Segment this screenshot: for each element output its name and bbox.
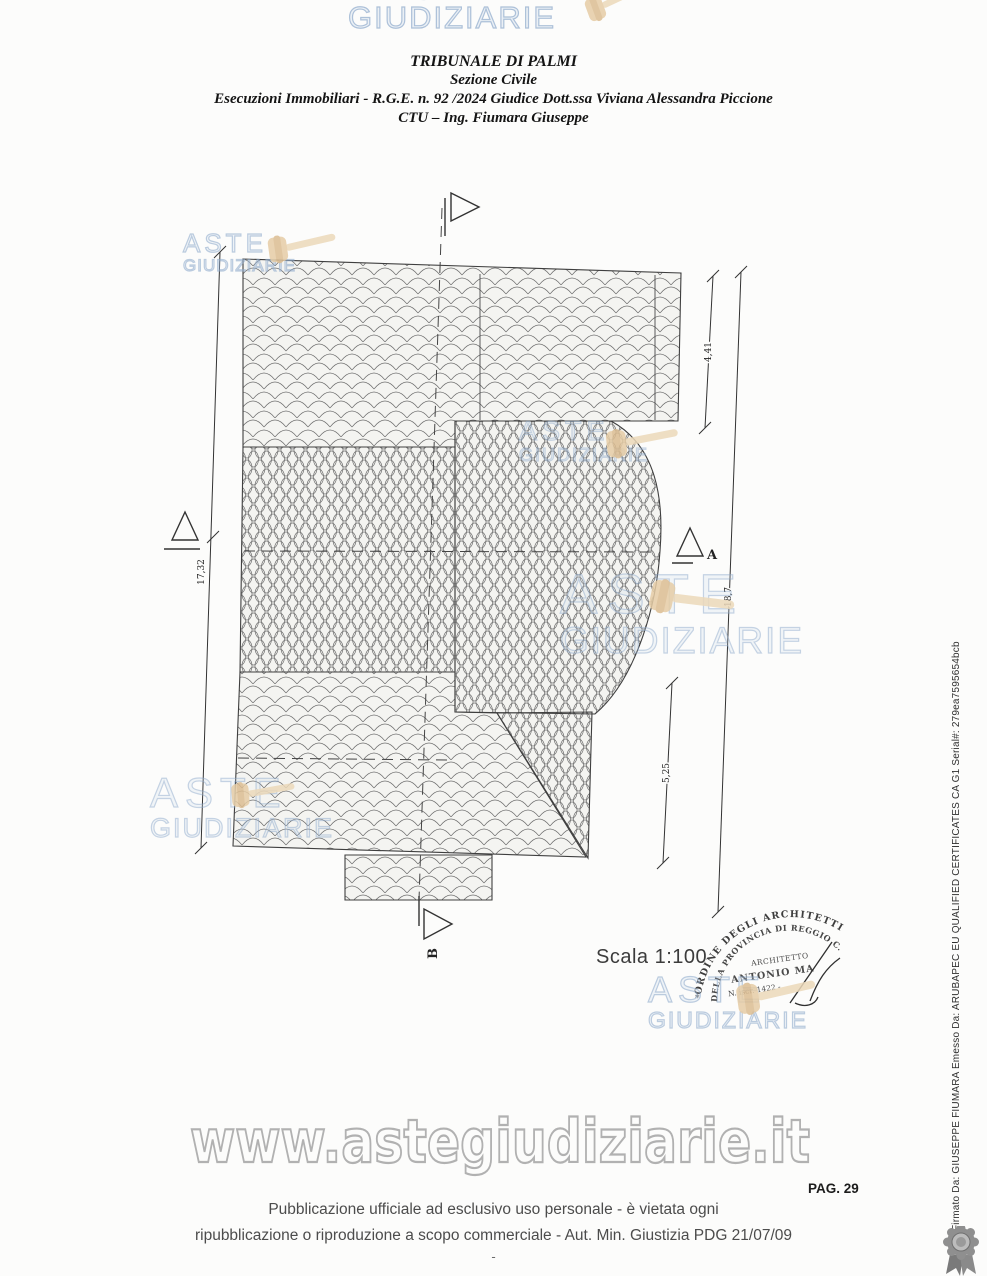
seal-ribbon-icon <box>936 1226 986 1276</box>
logo-word-giudiziarie: GIUDIZIARIE <box>150 815 334 843</box>
footer-line-2: ripubblicazione o riproduzione a scopo c… <box>0 1227 987 1245</box>
scale-label: Scala 1:100 <box>596 946 707 969</box>
section-marker-a-triangle <box>672 528 703 563</box>
digital-signature-text: Firmato Da: GIUSEPPE FIUMARA Emesso Da: … <box>951 541 966 1231</box>
gavel-icon <box>225 775 300 813</box>
case-reference: Esecuzioni Immobiliari - R.G.E. n. 92 /2… <box>0 90 987 109</box>
svg-text:www.astegiudiziarie.it: www.astegiudiziarie.it <box>190 1107 810 1177</box>
dim-label-right-bottom: 5,25 <box>662 763 672 783</box>
court-header: TRIBUNALE DI PALMI Sezione Civile Esecuz… <box>0 52 987 128</box>
scanned-document-page: 17,32 4,41 18,7 5,25 A B * ORDINE DEGLI … <box>0 0 987 1276</box>
section-marker-top-flag <box>445 193 479 236</box>
logo-word-giudiziarie: GIUDIZIARIE <box>560 622 804 660</box>
ctu-line: CTU – Ing. Fiumara Giuseppe <box>0 109 987 128</box>
section-marker-left-triangle <box>164 512 200 549</box>
logo-watermark-top2: GIUDIZIARIE <box>348 2 556 34</box>
section-marker-b-flag <box>419 896 452 939</box>
footer-line-1: Pubblicazione ufficiale ad esclusivo uso… <box>0 1201 987 1219</box>
section-letter-a: A <box>706 548 718 563</box>
dim-label-left: 17,32 <box>197 559 207 585</box>
url-watermark: www.astegiudiziarie.it <box>150 1082 850 1192</box>
footer-dash: - <box>0 1249 987 1264</box>
section-letter-b: B <box>426 948 441 959</box>
court-title: TRIBUNALE DI PALMI <box>0 52 987 71</box>
court-section: Sezione Civile <box>0 71 987 90</box>
dim-label-right-top: 4,41 <box>704 342 714 362</box>
logo-word-giudiziarie: GIUDIZIARIE <box>348 2 556 34</box>
page-number: PAG. 29 <box>808 1181 859 1196</box>
